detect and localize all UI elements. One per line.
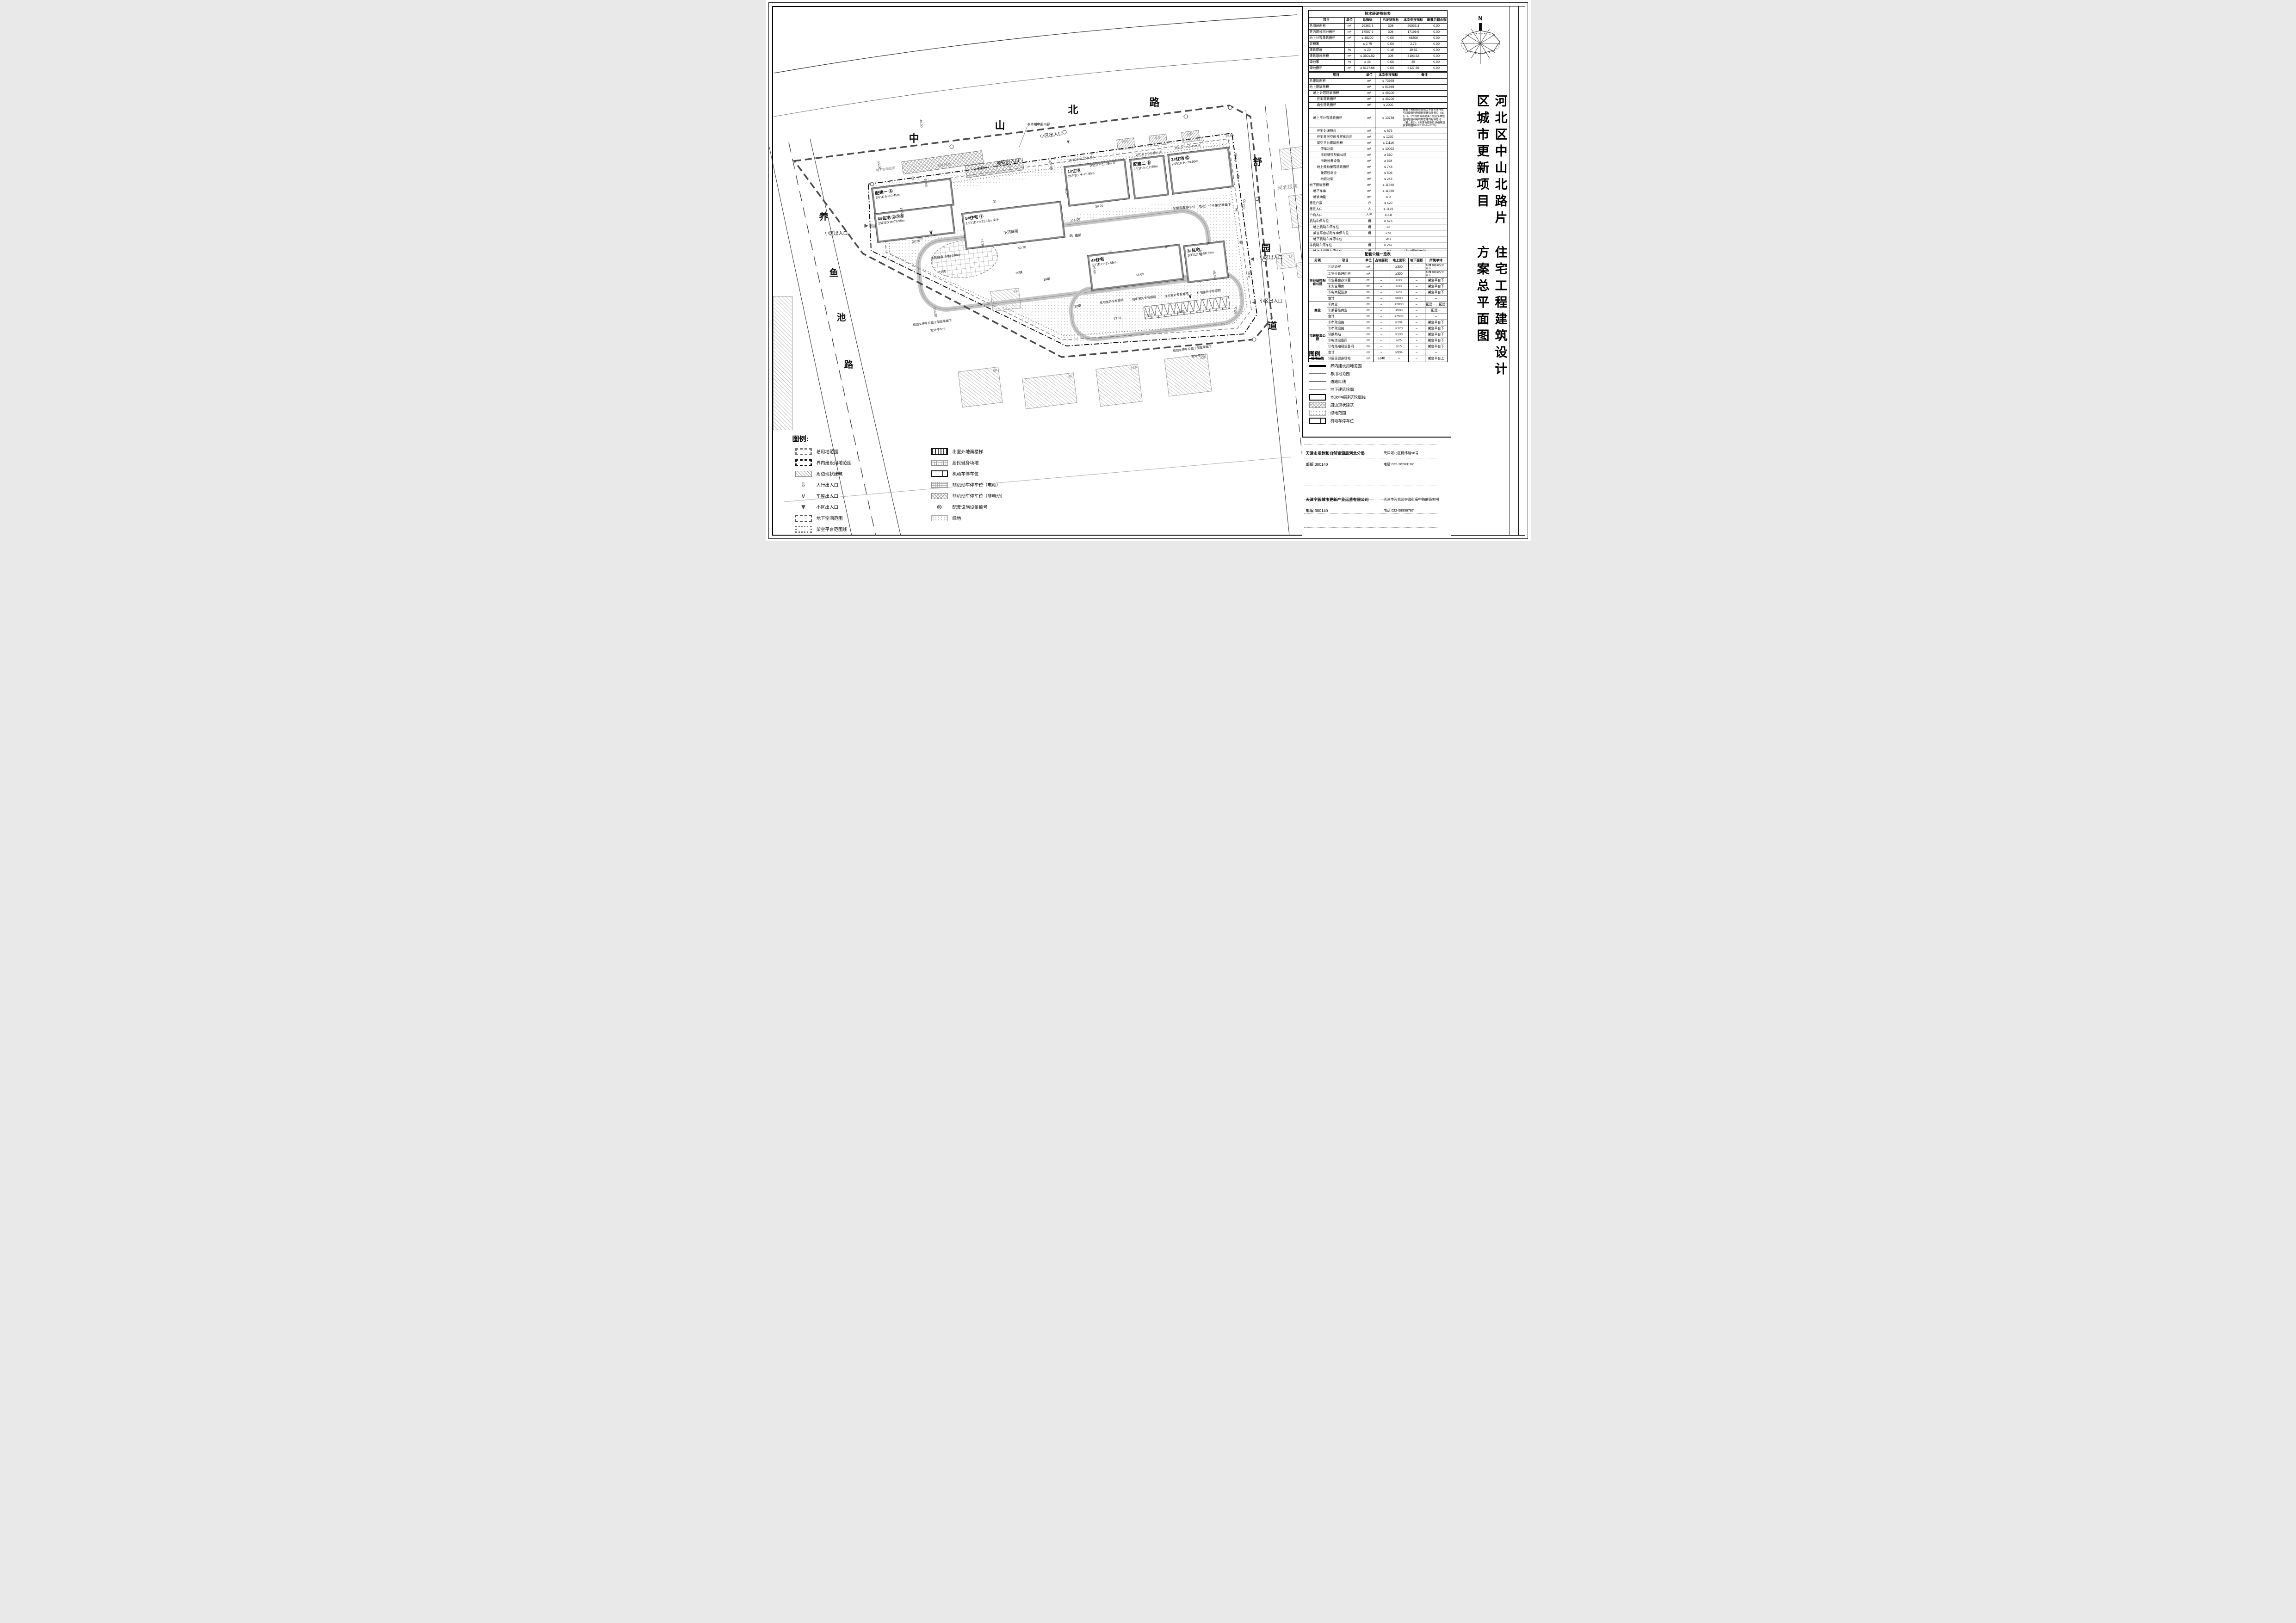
rect-outline-icon — [1309, 394, 1326, 401]
table-row: ⑤电商配送点m²–≥20–架空平台下 — [1308, 290, 1447, 296]
park-icon — [931, 470, 948, 477]
legend-item: ⇩人行出入口 — [795, 479, 911, 490]
table-cell: 地上机动车停车位 — [1308, 224, 1364, 230]
table-cell: – — [1425, 314, 1447, 320]
building-配建二 ⑥: 配建二 ⑥2F/1D h=12.85m — [1130, 155, 1169, 199]
table-cell: – — [1408, 271, 1425, 278]
table-cell: ≥130 — [1390, 332, 1408, 338]
legend-label: 架空平台范围线 — [817, 526, 848, 532]
table-cell: m² — [1364, 91, 1375, 97]
table-cell: m² — [1364, 128, 1375, 134]
table-cell — [1402, 97, 1447, 103]
table-cell: – — [1408, 302, 1425, 308]
table-cell — [1402, 103, 1447, 109]
plan-label: 4.00 — [1248, 271, 1252, 278]
table-cell: – — [1408, 296, 1425, 302]
table-cell: ≥30 — [1390, 278, 1408, 284]
cross-icon — [931, 493, 948, 499]
table-cell — [1402, 182, 1447, 188]
table-cell — [1402, 212, 1447, 218]
table-cell: m² — [1364, 140, 1375, 146]
table-row: 建筑基底面积m²≤ 3501.523083193.520.00 — [1308, 54, 1447, 60]
table-cell — [1402, 224, 1447, 230]
table-cell: 地铁功能 — [1308, 176, 1364, 182]
table-cell: 辆 — [1364, 224, 1375, 230]
table-title: 配套公建一览表 — [1308, 251, 1447, 258]
plan-label: 园 — [1262, 243, 1271, 253]
stairs-icon — [931, 448, 948, 455]
line-thin-icon — [1309, 386, 1326, 392]
plan-label: ∨ — [928, 229, 934, 236]
table-cell: ⑩换热站 — [1327, 332, 1364, 338]
existing-building: 4F — [1022, 372, 1077, 409]
table-row: ⑩换热站m²–≥130–架空平台下 — [1308, 332, 1447, 338]
table-cell: 地上计容建筑面积 — [1308, 36, 1344, 42]
table-cell: 界内建设用地面积 — [1308, 30, 1344, 36]
table-cell: – — [1373, 278, 1390, 284]
table-cell: m² — [1364, 182, 1375, 188]
plan-label: 鱼 — [829, 268, 839, 278]
plan-label: ⇩ — [910, 175, 916, 183]
legend-label: 车库出入口 — [817, 493, 839, 499]
table-cell: m² — [1344, 24, 1355, 30]
table-cell: 绿地面积 — [1308, 66, 1344, 72]
table-cell: m² — [1364, 302, 1373, 308]
table-row: 兼容性商业m²≤ 503 — [1308, 170, 1447, 176]
table-cell: ≤ 46200 — [1375, 97, 1402, 103]
table-cell: ≤2503 — [1390, 314, 1408, 320]
table-cell: 22 — [1375, 224, 1402, 230]
table-cell: m² — [1364, 79, 1375, 85]
table-cell: m² — [1344, 54, 1355, 60]
legend-item: 本次申报建筑轮廓线 — [1309, 393, 1448, 401]
table-cell: – — [1408, 284, 1425, 290]
grid-fine-icon — [931, 482, 948, 488]
table-cell: 架空平台机动车库停车位 — [1308, 230, 1364, 236]
existing-building: 18F — [1095, 364, 1142, 407]
legend-item: 道路红线 — [1309, 377, 1448, 385]
table-header-cell: 地下面积 — [1408, 258, 1425, 264]
table-cell: 0.00 — [1380, 60, 1401, 66]
table-row: 户均人口人/户≤ 2.8 — [1308, 212, 1447, 218]
econ-indicator-table: 技术经济指标表项目单位总指标已发证指标本次申报指标审批后剩余指标总用地面积m²2… — [1308, 10, 1448, 72]
plan-label: 风井 — [1154, 136, 1161, 140]
legend-item: 界内建设用地范围 — [1309, 362, 1448, 370]
table-cell: 架空平台下 — [1425, 332, 1447, 338]
table-row: 非机动车停车位辆≥ 267 — [1308, 242, 1447, 248]
table-header-cell: 备注 — [1402, 73, 1447, 79]
building-2#住宅 ⑫: 2#住宅 ⑫26F/1D H=79.95m — [1168, 147, 1233, 194]
table-cell: 架空平台下 — [1425, 344, 1447, 350]
table-cell: ②物业管理用房 — [1327, 271, 1364, 278]
table-cell — [1402, 164, 1447, 170]
existing-building-label: 1F — [1013, 290, 1018, 294]
table-cell — [1402, 79, 1447, 85]
plan-label: 10.00 — [923, 179, 928, 187]
legend-item: 非机动车停车位（非电动） — [931, 490, 1084, 501]
apply-indicator-table: 项目单位本次申报指标备注总建筑面积m²≤ 73969地上建筑面积m²≤ 6198… — [1308, 72, 1448, 266]
table-cell: ≥20 — [1390, 290, 1408, 296]
table-cell: 配建一 — [1425, 308, 1447, 314]
table-cell: 合计 — [1327, 296, 1364, 302]
table-cell: 0.00 — [1380, 36, 1401, 42]
title-block: N 河北区中山北路片区城市更新项目 住宅工程建筑设计方案总平面图 — [1451, 6, 1510, 535]
table-cell: ⑦兼容性商业 — [1327, 308, 1364, 314]
table-header-cell: 占地面积 — [1373, 258, 1390, 264]
table-row: ⑫有线电视设备间m²–≥15–架空平台下 — [1308, 344, 1447, 350]
plan-label: 25.49 — [1212, 270, 1216, 278]
table-cell: – — [1373, 314, 1390, 320]
plan-label: ≥5.00 — [876, 161, 881, 169]
table-row: 绿地面积m²≥ 6127.660.006127.660.00 — [1308, 66, 1447, 72]
table-row: 合计m²–≤2503–– — [1308, 314, 1447, 320]
table-header-cell: 已发证指标 — [1380, 18, 1401, 24]
table-cell: 2.75 — [1401, 42, 1426, 48]
legend-label: 出室外地面楼梯 — [953, 448, 984, 455]
legend-label: 人行出入口 — [817, 481, 839, 488]
table-cell: 地下建筑面积 — [1308, 182, 1364, 188]
table-cell: 根据《市规划资源局关于住宅多样性空间增值利用规划管理指导意见（试行）》、《市规划… — [1402, 109, 1447, 128]
table-cell: 0.00 — [1380, 66, 1401, 72]
plan-label: 15.50 — [1064, 187, 1068, 195]
table-cell: – — [1373, 296, 1390, 302]
table-row: ⑨市政设施m²–≥170–架空平台下 — [1308, 326, 1447, 332]
table-cell: m² — [1364, 152, 1375, 158]
table-cell: ≤ 73969 — [1375, 79, 1402, 85]
plan-label: 中 — [909, 133, 920, 144]
right-legend-title: 图例 — [1309, 350, 1321, 359]
table-row: 地下车库m²≤ 11980 — [1308, 188, 1447, 194]
road-north-edge — [774, 15, 1297, 73]
plan-legend: 图例: 总用地范围界内建设用地范围周边现状建筑⇩人行出入口∨车库出入口▼小区出入… — [792, 434, 1176, 445]
line-gray-icon — [1309, 370, 1326, 376]
table-header-cell: 总指标 — [1355, 18, 1380, 24]
plan-label: 小区出入口 — [1260, 299, 1283, 304]
drawing-titles: 河北区中山北路片区城市更新项目 住宅工程建筑设计方案总平面图 — [1451, 94, 1510, 381]
table-cell: 总用地面积 — [1308, 24, 1344, 30]
table-cell: ≥25 — [1390, 338, 1408, 344]
table-cell: 住宅封闭阳台 — [1308, 128, 1364, 134]
table-cell: ⑨市政设施 — [1327, 326, 1364, 332]
table-cell: – — [1373, 326, 1390, 332]
table-cell: 0.00 — [1426, 48, 1447, 54]
legend-item: 周边现状建筑 — [795, 468, 911, 479]
table-cell: ≤ 10022 — [1375, 146, 1402, 152]
table-title: 技术经济指标表 — [1308, 11, 1447, 18]
legend-label: 配套设施设备编号 — [953, 504, 988, 510]
table-cell: – — [1373, 308, 1390, 314]
existing-building-label: 4F — [1068, 374, 1072, 379]
table-cell: 架空平台下 — [1425, 284, 1447, 290]
table-cell: m² — [1364, 344, 1373, 350]
table-cell: 0.00 — [1426, 60, 1447, 66]
plan-label: ◀ — [1250, 256, 1254, 262]
table-cell: 19.82 — [1401, 48, 1426, 54]
table-cell: 合计 — [1327, 314, 1364, 320]
table-cell: ≤ 245 — [1375, 176, 1402, 182]
table-cell: 308 — [1380, 24, 1401, 30]
table-cell: ≤ 13789 — [1375, 109, 1402, 128]
tri-solid-icon: ▼ — [795, 504, 812, 510]
chevron-icon: ∨ — [795, 493, 812, 499]
org2-address: 天津市河北区宁园街道中纺前街32号 — [1384, 497, 1440, 502]
table-cell: 辆 — [1364, 230, 1375, 236]
table-cell: 地上建筑面积 — [1308, 85, 1364, 91]
table-cell: 总建筑面积 — [1308, 79, 1364, 85]
table-cell: – — [1408, 308, 1425, 314]
legend-label: 非机动车停车位（非电动） — [953, 493, 1005, 499]
table-cell: ≤ 2.8 — [1375, 212, 1402, 218]
table-row: ③业委会办公室m²–≥30–架空平台下 — [1308, 278, 1447, 284]
table-row: ⑦兼容性商业m²–≤503–配建一 — [1308, 308, 1447, 314]
table-cell: m² — [1364, 176, 1375, 182]
existing-building-label: 1F — [1288, 254, 1293, 259]
table-cell: ≥ 35 — [1355, 60, 1380, 66]
table-cell: m² — [1364, 296, 1373, 302]
table-cell: – — [1373, 332, 1390, 338]
dots-icon — [1309, 410, 1326, 416]
table-cell: 地上计容建筑面积 — [1308, 91, 1364, 97]
plan-label: 风井 — [1187, 132, 1193, 136]
legend-label: 小区出入口 — [817, 504, 839, 510]
table-cell: m² — [1364, 338, 1373, 344]
table-row: 地上机动车停车位辆22 — [1308, 224, 1447, 230]
plan-label: ▼ — [1065, 139, 1071, 145]
table-cell — [1402, 188, 1447, 194]
table-row: 建筑密度%≤ 200.1819.820.00 — [1308, 48, 1447, 54]
table-cell: ≥170 — [1390, 326, 1408, 332]
table-cell: 308 — [1380, 30, 1401, 36]
legend-item: 地下空间范围 — [795, 512, 911, 524]
table-header-cell: 本次申报指标 — [1401, 18, 1426, 24]
table-row: 停车功能m²≤ 10022 — [1308, 146, 1447, 152]
table-cell: – — [1408, 332, 1425, 338]
table-row: 市政配套公建⑧市政设施m²–≥194–架空平台下 — [1308, 320, 1447, 326]
table-cell: 17507.6 — [1355, 30, 1380, 36]
table-cell: 住宅首层空间多样化利用 — [1308, 134, 1364, 140]
table-cell: 市政设备设施 — [1308, 158, 1364, 164]
legend-item: 周边现状建筑 — [1309, 401, 1448, 409]
north-arrow-icon: N — [1457, 15, 1504, 70]
table-cell: – — [1408, 264, 1425, 271]
table-cell: % — [1344, 60, 1355, 66]
legend-label: 本次申报建筑轮廓线 — [1331, 395, 1366, 400]
legend-label: 居民健身场地 — [953, 459, 979, 466]
legend-item: ∨车库出入口 — [795, 490, 911, 501]
table-cell: 0.00 — [1426, 30, 1447, 36]
table-row: 非经营性配套公建①活动室m²–≥300–5#楼首层架空平台下 — [1308, 264, 1447, 271]
legend-item: 机动车停车位 — [1309, 417, 1448, 425]
table-row: ⑪电信设备间m²–≥25–架空平台下 — [1308, 338, 1447, 344]
table-cell: – — [1408, 320, 1425, 326]
table-cell: ≥30 — [1390, 284, 1408, 290]
legend-item: ▼小区出入口 — [795, 501, 911, 512]
table-cell: m² — [1364, 109, 1375, 128]
table-cell: 架空平台下 — [1425, 278, 1447, 284]
table-cell: 建筑基底面积 — [1308, 54, 1344, 60]
table-cell: 地铁功能 — [1308, 194, 1364, 200]
table-row: 地上不计容建筑面积m²≤ 13789根据《市规划资源局关于住宅多样性空间增值利用… — [1308, 109, 1447, 128]
table-cell: ≤ 0 — [1375, 194, 1402, 200]
table-row: ②物业管理用房m²–≥300–5#楼首层架空平台下 — [1308, 271, 1447, 278]
table-cell: 26363.3 — [1355, 24, 1380, 30]
table-cell: – — [1408, 326, 1425, 332]
table-cell — [1402, 140, 1447, 146]
dash-rect-icon — [795, 515, 812, 522]
table-cell: 户均人口 — [1308, 212, 1364, 218]
table-cell — [1402, 236, 1447, 242]
table-cell: 17199.6 — [1401, 30, 1426, 36]
table-cell: ≥680 — [1390, 296, 1408, 302]
table-cell: 非机动车停车位 — [1308, 242, 1364, 248]
table-cell: 0.00 — [1426, 42, 1447, 48]
legend-item: 出室外地面楼梯 — [931, 446, 1084, 457]
table-cell: – — [1408, 338, 1425, 344]
table-cell: ⑫有线电视设备间 — [1327, 344, 1364, 350]
table-row: 地铁功能m²≤ 0 — [1308, 194, 1447, 200]
legend-label: 界内建设用地范围 — [1331, 363, 1362, 369]
drawing-title: 住宅工程建筑设计方案总平面图 — [1451, 246, 1510, 381]
table-row: 商业⑥商业m²–≤2000–配建一、配建二 — [1308, 302, 1447, 308]
table-cell — [1402, 152, 1447, 158]
north-label: N — [1478, 15, 1482, 22]
table-group-cell: 非经营性配套公建 — [1308, 264, 1327, 302]
table-row: 地下建筑面积m²≤ 11980 — [1308, 182, 1447, 188]
legend-item: 机动车停车位 — [931, 468, 1084, 479]
legend-item: 总用地范围 — [1309, 370, 1448, 377]
table-row: 地上计容建筑面积m²≤ 482000.00482000.00 — [1308, 36, 1447, 42]
legend-label: 周边现状建筑 — [817, 470, 843, 477]
table-cell: 辆 — [1364, 218, 1375, 224]
legend-label: 地下空间范围 — [817, 515, 843, 521]
right-legend: 图例 界内建设用地范围总用地范围道路红线地下建筑轮廓本次申报建筑轮廓线周边现状建… — [1309, 350, 1448, 425]
table-cell: 地上鼓励兼容建筑面积 — [1308, 164, 1364, 170]
table-cell: 0.00 — [1426, 24, 1447, 30]
legend-label: 总用地范围 — [1331, 371, 1350, 376]
plan-label: ⑧ — [1235, 208, 1238, 213]
table-cell: 26055.3 — [1401, 24, 1426, 30]
plan-label: 山 — [995, 120, 1006, 131]
table-cell: 0.00 — [1426, 36, 1447, 42]
table-cell: ≤ 11980 — [1375, 182, 1402, 188]
legend-item: 界内建设用地范围 — [795, 457, 911, 468]
legend-label: 总用地范围 — [817, 448, 839, 455]
plan-label: 雕塑 — [1075, 234, 1082, 238]
legend-label: 界内建设用地范围 — [817, 459, 852, 466]
plan-label: 小区出入口 — [1260, 255, 1283, 260]
table-cell: 308 — [1380, 54, 1401, 60]
table-cell: m² — [1364, 326, 1373, 332]
plan-label: 池 — [837, 313, 847, 323]
table-cell: ≤ 61989 — [1375, 85, 1402, 91]
table-cell — [1402, 218, 1447, 224]
table-row: 居住人口人≤ 1176 — [1308, 206, 1447, 212]
table-cell: ⑤电商配送点 — [1327, 290, 1364, 296]
plan-label: ⑦ — [993, 200, 996, 204]
table-cell: 非经营性配套公建 — [1308, 152, 1364, 158]
table-header-cell: 审批后剩余指标 — [1426, 18, 1447, 24]
table-cell: 建筑密度 — [1308, 48, 1344, 54]
table-row: 界内建设用地面积m²17507.630817199.60.00 — [1308, 30, 1447, 36]
table-cell: 3193.52 — [1401, 54, 1426, 60]
table-cell: 容积率 — [1308, 42, 1344, 48]
plan-label: 北 — [1068, 105, 1079, 116]
legend-item: 居民健身场地 — [931, 457, 1084, 468]
table-cell — [1402, 242, 1447, 248]
org1-name: 天津市规划和自然资源局河北分局 — [1306, 450, 1365, 456]
table-row: 市政设备设施m²≥ 534 — [1308, 158, 1447, 164]
legend-item: 绿地 — [931, 512, 1084, 524]
plan-label: 路 — [1150, 97, 1160, 108]
table-cell: ≤ 503 — [1375, 170, 1402, 176]
table-cell: 35 — [1401, 60, 1426, 66]
table-cell: 架空平台下 — [1425, 290, 1447, 296]
legend-label: 机动车停车位 — [953, 470, 979, 477]
table-cell: ≤ 675 — [1375, 128, 1402, 134]
table-header-cell: 单位 — [1344, 18, 1355, 24]
table-header-cell: 本次申报指标 — [1375, 73, 1402, 79]
table-cell: ≤503 — [1390, 308, 1408, 314]
table-cell — [1402, 158, 1447, 164]
table-cell: 48200 — [1401, 36, 1426, 42]
table-cell: 5#楼首层架空平台下 — [1425, 264, 1447, 271]
table-cell: – — [1373, 264, 1390, 271]
plan-label: 15.50 — [899, 207, 904, 216]
plan-label: ▶ — [865, 223, 868, 228]
table-cell: 0.18 — [1380, 48, 1401, 54]
cross-icon — [1309, 402, 1326, 408]
plan-label: 舒 — [1253, 157, 1263, 167]
legend-item: 非机动车停车位（电动） — [931, 479, 1084, 490]
table-cell — [1402, 91, 1447, 97]
table-cell: m² — [1364, 284, 1373, 290]
table-row: 地上计容建筑面积m²≤ 48200 — [1308, 91, 1447, 97]
table-cell: m² — [1364, 320, 1373, 326]
table-header-cell: 单位 — [1364, 258, 1373, 264]
table-row: 总建筑面积m²≤ 73969 — [1308, 79, 1447, 85]
table-cell: ⑧市政设施 — [1327, 320, 1364, 326]
footer: 天津市规划和自然资源局河北分局 邮编:300140 天津河北区昆纬路98号 电话… — [1302, 437, 1451, 536]
table-header-cell: 项目 — [1308, 73, 1364, 79]
table-cell: ⑪电信设备间 — [1327, 338, 1364, 344]
legend-item: ⊗配套设施设备编号 — [931, 501, 1084, 512]
plan-label: 16.88 — [1198, 248, 1202, 256]
table-cell: 住宅建筑面积 — [1308, 97, 1364, 103]
plan-label: 非本期申报内容 — [1027, 123, 1050, 127]
table-cell: – — [1408, 314, 1425, 320]
plan-label: 7.00 — [1237, 175, 1241, 181]
table-cell — [1402, 170, 1447, 176]
table-cell: ≥ 534 — [1375, 158, 1402, 164]
table-cell: – — [1373, 284, 1390, 290]
table-cell: 281 — [1375, 236, 1402, 242]
table-cell: m² — [1364, 264, 1373, 271]
legend-label: 绿地 — [953, 515, 961, 521]
existing-building-label: 18F — [1130, 365, 1137, 370]
legend-label: 机动车停车位 — [1331, 418, 1354, 424]
table-row: 住宅封闭阳台m²≤ 675 — [1308, 128, 1447, 134]
table-cell: – — [1373, 302, 1390, 308]
hatch-icon — [795, 471, 812, 477]
table-cell: m² — [1364, 103, 1375, 109]
table-cell: 5#楼首层架空平台下 — [1425, 271, 1447, 278]
tick-rect-icon — [795, 526, 812, 533]
table-cell: m² — [1364, 271, 1373, 278]
existing-building-label: 6F — [993, 368, 997, 373]
table-cell: m² — [1344, 66, 1355, 72]
table-cell: 地上不计容建筑面积 — [1308, 109, 1364, 128]
table-cell — [1364, 236, 1375, 242]
